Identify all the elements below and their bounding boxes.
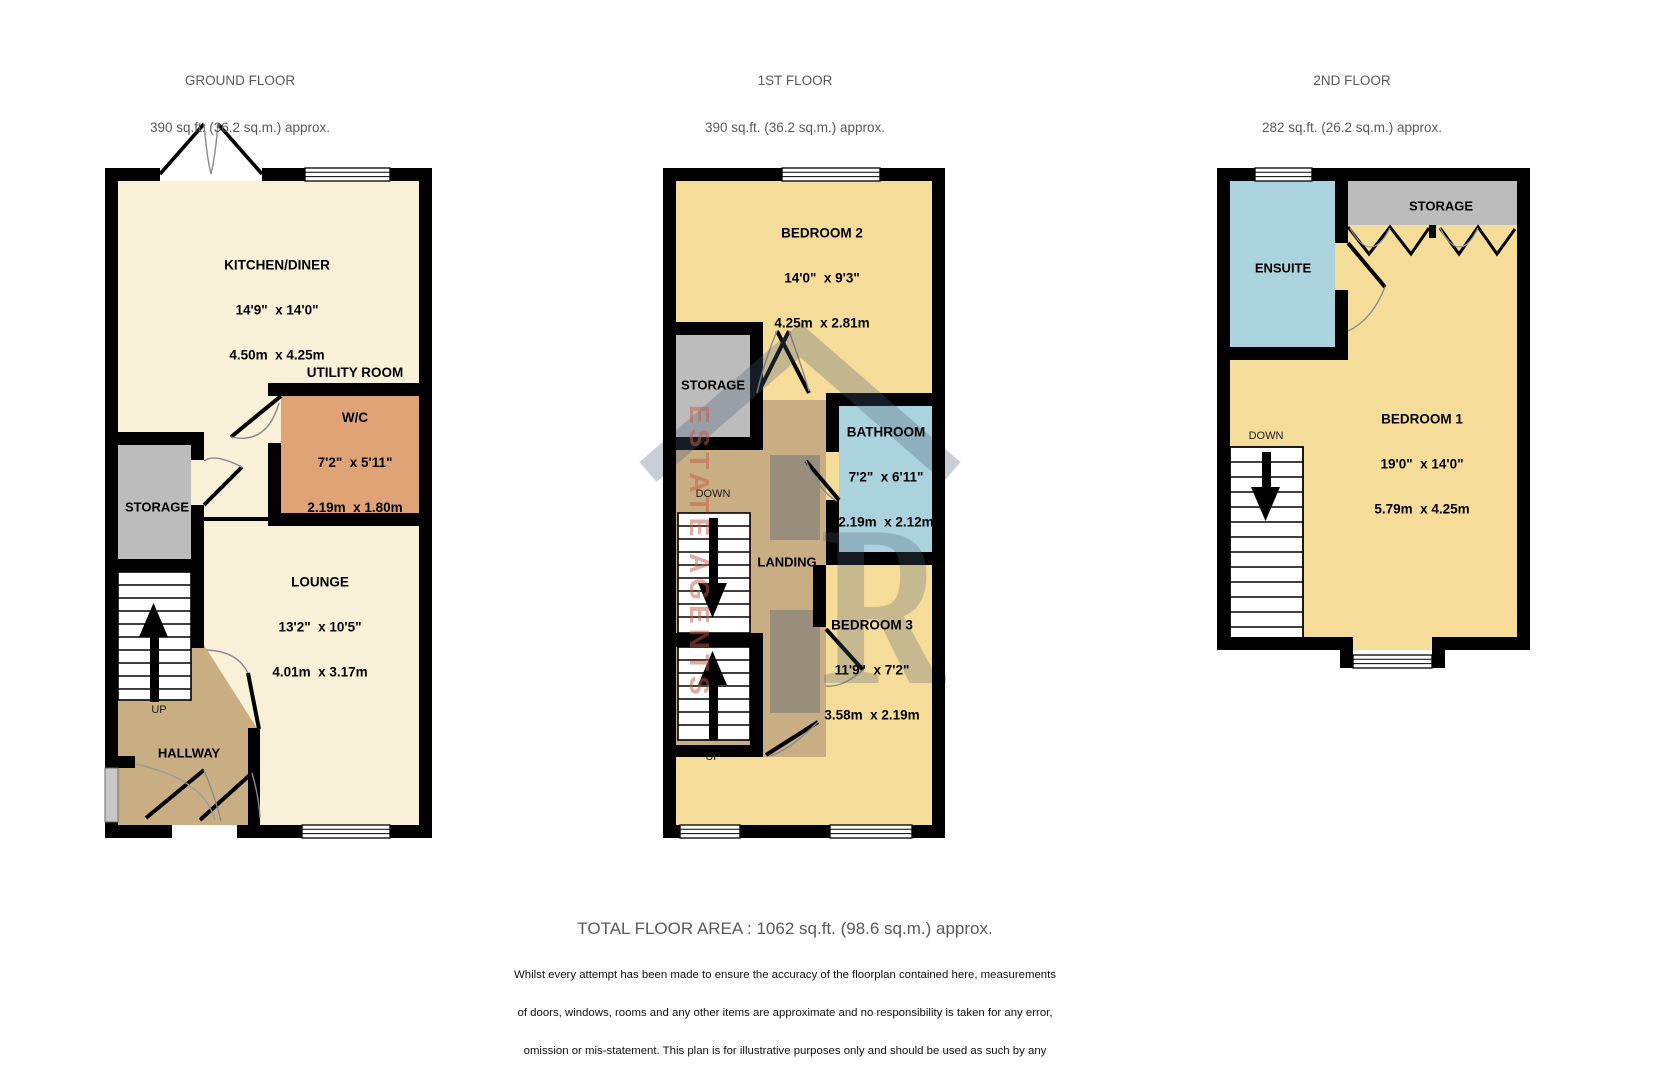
second-floor-title: 2ND FLOOR	[1262, 73, 1442, 89]
room-label-landing: LANDING	[757, 525, 816, 600]
room-label-bathroom: BATHROOM 7'2" x 6'11" 2.19m x 2.12m	[838, 395, 933, 560]
first-floor-header: 1ST FLOOR 390 sq.ft. (36.2 sq.m.) approx…	[705, 42, 885, 166]
room-label-hallway: HALLWAY	[158, 716, 220, 791]
total-floor-area: TOTAL FLOOR AREA : 1062 sq.ft. (98.6 sq.…	[577, 919, 992, 939]
ground-stairs	[118, 572, 204, 702]
room-label-ground-storage: STORAGE	[125, 470, 189, 545]
side-window	[105, 768, 118, 822]
room-divider	[204, 517, 268, 521]
second-floor-header: 2ND FLOOR 282 sq.ft. (26.2 sq.m.) approx…	[1262, 42, 1442, 166]
first-floor-area: 390 sq.ft. (36.2 sq.m.) approx.	[705, 120, 885, 136]
room-label-bedroom1: BEDROOM 1 19'0" x 14'0" 5.79m x 4.25m	[1374, 382, 1469, 547]
room-label-ensuite: ENSUITE	[1255, 231, 1311, 306]
up-label-ground: UP	[151, 704, 166, 716]
first-floor-title: 1ST FLOOR	[705, 73, 885, 89]
room-label-lounge: LOUNGE 13'2" x 10'5" 4.01m x 3.17m	[272, 545, 367, 710]
stairs-side-wall	[750, 647, 763, 757]
ground-floor-header: GROUND FLOOR 390 sq.ft. (36.2 sq.m.) app…	[150, 42, 330, 166]
room-label-bedroom3: BEDROOM 3 11'9" x 7'2" 3.58m x 2.19m	[824, 588, 919, 753]
second-floor-area: 282 sq.ft. (26.2 sq.m.) approx.	[1262, 120, 1442, 136]
room-label-second-storage: STORAGE	[1409, 169, 1473, 244]
room-label-utility: UTILITY ROOM W/C 7'2" x 5'11" 2.19m x 1.…	[307, 335, 404, 545]
disclaimer-text: Whilst every attempt has been made to en…	[511, 943, 1059, 1080]
room-label-bedroom2: BEDROOM 2 14'0" x 9'3" 4.25m x 2.81m	[774, 196, 869, 361]
ground-floor-area: 390 sq.ft. (36.2 sq.m.) approx.	[150, 120, 330, 136]
room-label-first-storage: STORAGE	[681, 348, 745, 423]
second-stairs	[1230, 447, 1303, 640]
down-label-second: DOWN	[1249, 430, 1284, 442]
landing-cupboard	[770, 610, 820, 713]
up-label-first: UP	[705, 751, 720, 763]
down-label-first: DOWN	[696, 488, 731, 500]
ground-floor-title: GROUND FLOOR	[150, 73, 330, 89]
watermark-vertical-text: ESTATE AGENTS	[684, 405, 715, 700]
floorplan-page: R ESTATE AGENTS	[0, 0, 1665, 1080]
